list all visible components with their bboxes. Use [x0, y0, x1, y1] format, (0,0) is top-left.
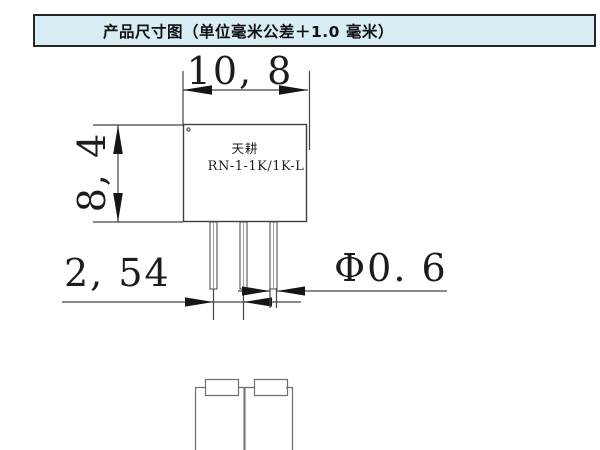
pin-center-lines [214, 222, 274, 289]
arrowhead-up-icon [113, 125, 123, 154]
dim-width-label: 10, 8 [170, 52, 310, 90]
resistor-symbol [206, 380, 239, 396]
dim-diameter-label: Φ0. 6 [334, 249, 448, 287]
brand-label: 天耕 [183, 138, 307, 157]
arrowhead-left-icon [244, 297, 273, 306]
dim-pitch-label: 2, 54 [64, 254, 171, 292]
schematic-bottom-view [195, 380, 293, 450]
model-label: RN-1-1K/1K-L [196, 159, 316, 174]
arrowhead-left-icon [277, 286, 305, 295]
resistor-symbol [255, 380, 288, 396]
arrowhead-right-icon [242, 286, 270, 295]
arrowhead-down-icon [113, 193, 123, 222]
drawing-sheet: 产品尺寸图（单位毫米公差＋1.0 毫米） [0, 0, 600, 450]
dim-height-label: 8, 4 [73, 122, 111, 222]
arrowhead-right-icon [185, 297, 214, 306]
